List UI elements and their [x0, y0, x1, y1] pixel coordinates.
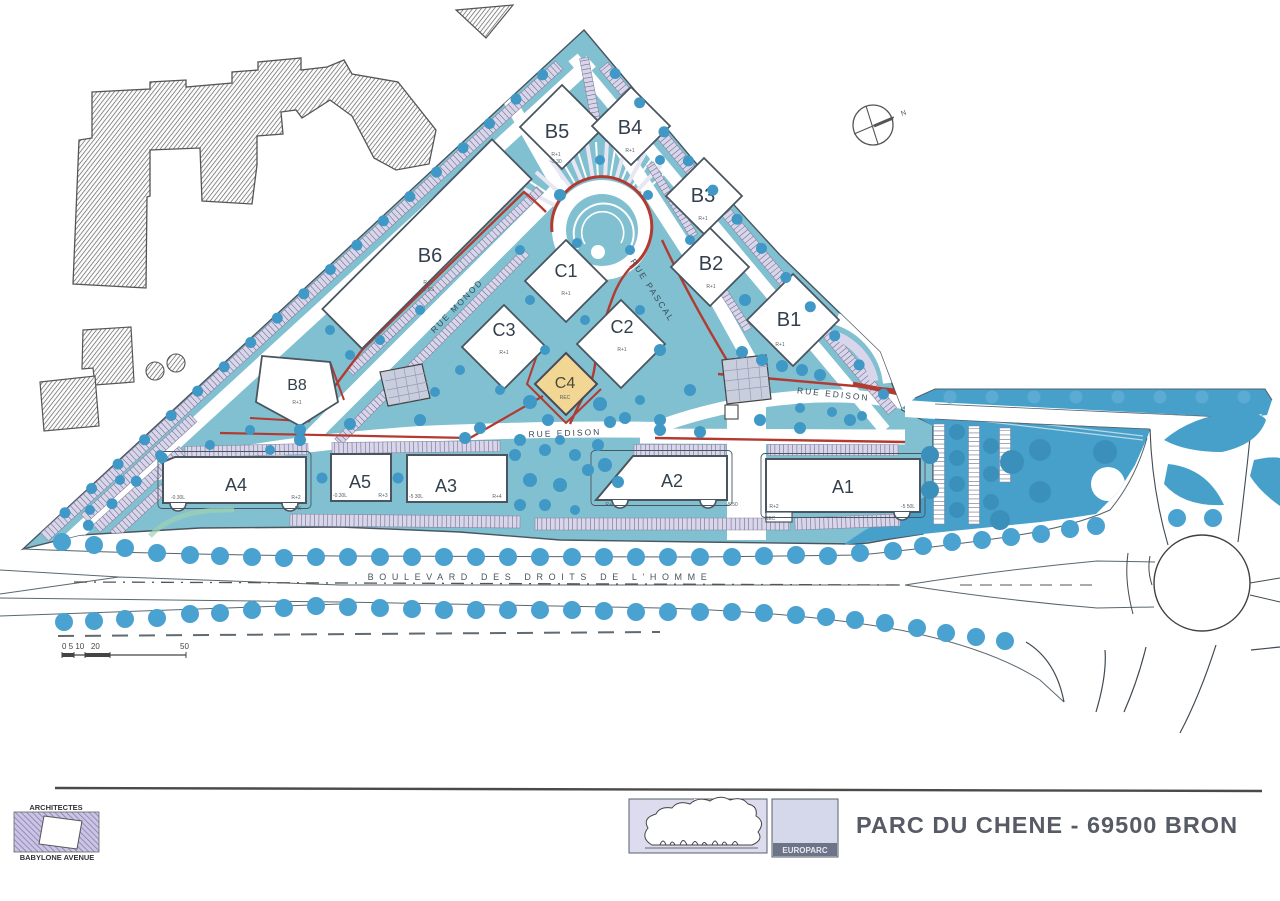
svg-text:-5.30: -5.30 — [550, 159, 562, 165]
svg-text:C1: C1 — [554, 261, 577, 281]
svg-text:A5: A5 — [349, 472, 371, 492]
svg-text:B8: B8 — [287, 377, 307, 394]
svg-text:-2 SS: -2 SS — [422, 287, 435, 293]
svg-text:R+1: R+1 — [292, 400, 302, 406]
svg-text:PARC DU CHENE - 69500 BRON: PARC DU CHENE - 69500 BRON — [856, 812, 1238, 838]
svg-text:B6: B6 — [418, 245, 442, 267]
svg-text:-0.30L: -0.30L — [333, 493, 347, 499]
svg-text:50: 50 — [180, 642, 189, 651]
svg-text:EUROPARC: EUROPARC — [782, 846, 827, 855]
svg-text:R+1: R+1 — [775, 342, 785, 348]
svg-text:R+1: R+1 — [625, 148, 635, 154]
svg-text:BOULEVARD DES DROITS DE L'HOMM: BOULEVARD DES DROITS DE L'HOMME — [368, 572, 713, 582]
svg-text:R+2: R+2 — [291, 495, 301, 501]
svg-text:-0.30L: -0.30L — [171, 495, 185, 501]
svg-text:C2: C2 — [610, 317, 633, 337]
svg-text:B5: B5 — [545, 121, 569, 143]
svg-text:A1: A1 — [832, 477, 854, 497]
svg-text:R+1: R+1 — [561, 291, 571, 297]
svg-text:-5.50: -5.50 — [726, 502, 738, 508]
svg-text:R+1: R+1 — [698, 216, 708, 222]
svg-text:REC: REC — [560, 395, 571, 401]
svg-text:ARCHITECTES: ARCHITECTES — [29, 803, 82, 812]
svg-text:REC: REC — [765, 516, 776, 522]
svg-text:R+4: R+4 — [492, 494, 502, 500]
svg-text:PK: PK — [295, 506, 302, 512]
svg-text:BABYLONE AVENUE: BABYLONE AVENUE — [20, 853, 95, 862]
svg-text:R+1: R+1 — [499, 350, 509, 356]
svg-text:R+2: R+2 — [769, 504, 779, 510]
svg-text:R+3: R+3 — [378, 493, 388, 499]
svg-text:R+1: R+1 — [706, 284, 716, 290]
svg-text:0 5 10 20: 0 5 10 20 — [62, 642, 100, 651]
svg-text:C4: C4 — [555, 375, 576, 392]
svg-text:A2: A2 — [661, 471, 683, 491]
svg-text:-5 50L: -5 50L — [901, 504, 915, 510]
svg-text:R+1: R+1 — [423, 280, 433, 286]
svg-text:R+1: R+1 — [605, 502, 615, 508]
svg-text:B1: B1 — [777, 309, 801, 331]
svg-text:B2: B2 — [699, 253, 723, 275]
svg-text:-5 30L: -5 30L — [409, 494, 423, 500]
svg-text:R+1: R+1 — [551, 152, 561, 158]
svg-text:A4: A4 — [225, 475, 247, 495]
svg-text:A3: A3 — [435, 476, 457, 496]
svg-text:B4: B4 — [618, 117, 642, 139]
svg-text:C3: C3 — [492, 320, 515, 340]
svg-text:R+1: R+1 — [617, 347, 627, 353]
